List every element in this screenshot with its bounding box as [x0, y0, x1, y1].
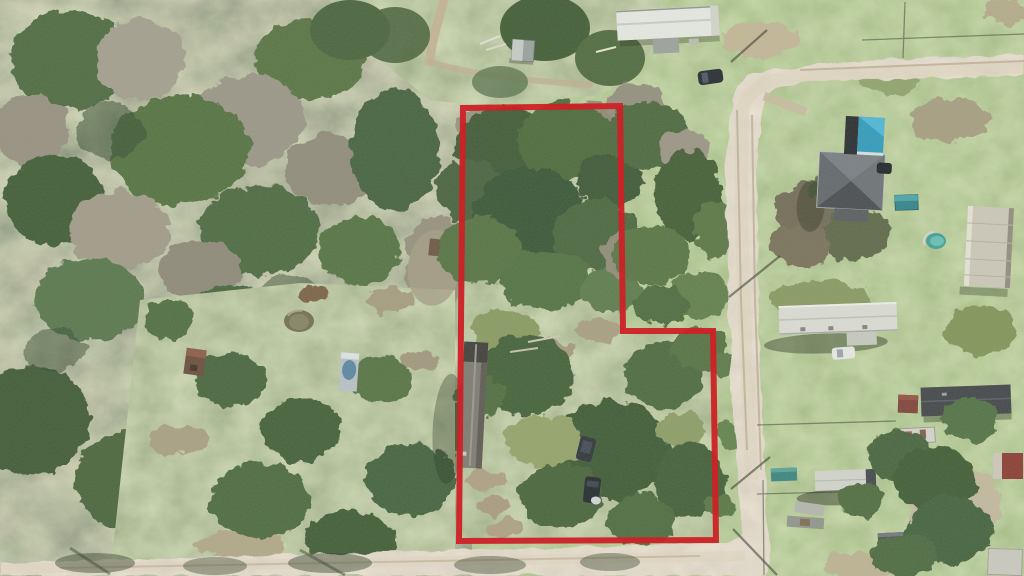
- aerial-photo: [0, 0, 1024, 576]
- photo-grain: [0, 0, 1024, 576]
- screenshot-root: [0, 0, 1024, 576]
